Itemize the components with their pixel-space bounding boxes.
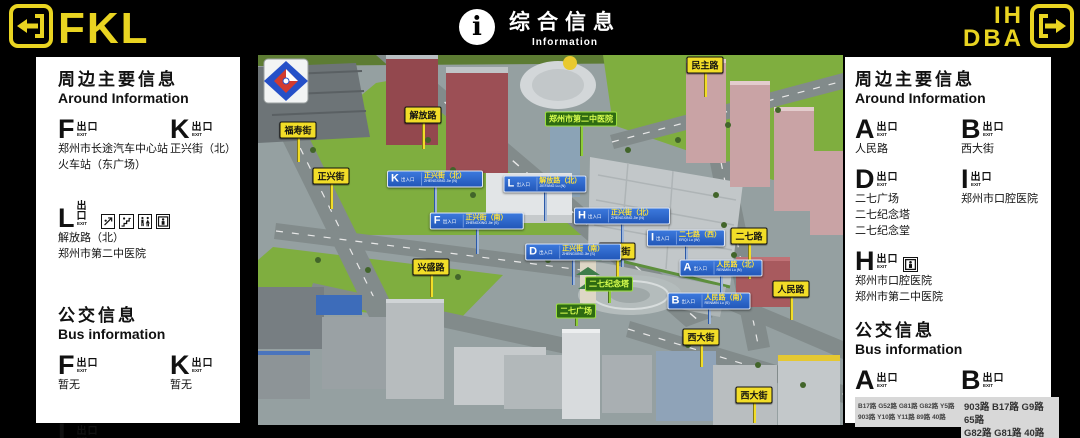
street-label: 二七路	[730, 228, 767, 245]
exit-word: 出口EXIT	[983, 123, 1005, 140]
escalator-icon	[101, 214, 115, 229]
exit-info-line: 火车站（东广场）	[58, 158, 170, 172]
exit-info-line: 暂无	[170, 378, 234, 392]
exit-marker-pole	[572, 259, 575, 285]
street-label: 兴盛路	[412, 259, 449, 276]
right-info-panel: 周边主要信息 Around Information A出口EXIT人民路B出口E…	[845, 57, 1051, 423]
exit-letter: A	[855, 369, 875, 391]
exit-info-line: 郑州市长途汽车中心站	[58, 142, 170, 156]
right-exit-letters: IH DBA	[963, 4, 1024, 50]
exit-entry-I: I出口EXIT郑州市口腔医院	[961, 168, 1045, 238]
around-entries-left: F出口EXIT郑州市长途汽车中心站火车站（东广场）K出口EXIT正兴街（北）L出…	[58, 118, 234, 261]
map-exit-marker-F: F出入口正兴街（南）ZHENGXING Jie (S)	[430, 213, 524, 230]
exit-info-line: 郑州市第二中医院	[855, 290, 961, 304]
exit-word: 出口EXIT	[877, 255, 899, 272]
exit-word: 出口EXIT	[877, 173, 899, 190]
exit-letter: L	[58, 422, 75, 438]
exit-info-line: 暂无	[58, 378, 170, 392]
exit-marker-pole	[434, 186, 437, 216]
exit-letter: I	[961, 168, 969, 190]
exit-entry-H: H出口EXIT郑州市口腔医院郑州市第二中医院	[855, 250, 961, 304]
street-label: 西大街	[682, 329, 719, 346]
info-icon: i	[459, 9, 495, 45]
street-label: 人民路	[772, 281, 809, 298]
exit-word: 出口EXIT	[77, 359, 99, 376]
label-pointer	[330, 182, 333, 209]
label-pointer	[297, 136, 300, 162]
street-label: 民主路	[686, 57, 723, 74]
bus-title-en: Bus information	[855, 341, 1045, 357]
exit-word: 出口EXIT	[877, 374, 899, 391]
around-title-en: Around Information	[855, 90, 1045, 106]
label-pointer	[704, 71, 707, 97]
left-exit-letters: FKL	[58, 5, 150, 53]
map-exit-marker-L: L出入口解放路（北）JIEFANG Lu (N)	[503, 176, 586, 193]
page-title: 综合信息	[509, 6, 621, 36]
street-label: 正兴街	[312, 168, 349, 185]
label-pointer	[430, 273, 433, 297]
street-label: 西大街	[735, 387, 772, 404]
exit-marker-pole	[476, 228, 479, 254]
map-exit-marker-A: A出入口人民路（北）RENMIN Lu (N)	[680, 260, 763, 277]
bus-title-en: Bus information	[58, 326, 234, 342]
exit-info-line: 解放路（北）	[58, 231, 170, 245]
map-exit-marker-K: K出入口正兴街（北）ZHENGXING Jie (N)	[387, 171, 483, 188]
exit-marker-pole	[544, 191, 547, 221]
elevator-icon	[156, 214, 170, 229]
exit-entry-B: B出口EXIT西大街	[961, 118, 1045, 156]
exit-entry-B: B出口EXIT903路 B17路 G9路 65路G82路 G81路 40路	[961, 369, 1072, 438]
exit-info-line: 郑州市口腔医院	[961, 192, 1045, 206]
bus-info-title-left: 公交信息 Bus information	[58, 301, 234, 342]
exit-letter: F	[58, 118, 75, 140]
label-pointer	[790, 295, 793, 320]
exit-entry-K: K出口EXIT暂无	[170, 354, 234, 392]
exit-info-line: 二七纪念塔	[855, 208, 961, 222]
exit-entry-D: D出口EXIT二七广场二七纪念塔二七纪念堂	[855, 168, 961, 238]
exit-info-line: 二七纪念堂	[855, 224, 961, 238]
page-title-en: Information	[509, 37, 621, 48]
exit-info-line: 郑州市口腔医院	[855, 274, 961, 288]
restroom-icon	[138, 214, 152, 229]
exit-entry-L: L出口EXIT暂无	[58, 422, 170, 438]
label-pointer	[422, 121, 425, 149]
exit-word: 出口EXIT	[192, 359, 214, 376]
bus-entries-left: F出口EXIT暂无K出口EXIT暂无L出口EXIT暂无	[58, 354, 234, 438]
label-pointer	[753, 401, 756, 423]
elevator-icon	[903, 257, 918, 272]
exit-word: 出口EXIT	[971, 173, 993, 190]
around-title-en: Around Information	[58, 90, 234, 106]
exit-letter: A	[855, 118, 875, 140]
exit-info-line: 二七广场	[855, 192, 961, 206]
exit-right-icon	[1029, 3, 1075, 54]
bus-route-box: B17路 G52路 G81路 G82路 Y5路903路 Y10路 Y11路 89…	[855, 397, 961, 427]
left-info-panel: 周边主要信息 Around Information F出口EXIT郑州市长途汽车…	[36, 57, 240, 423]
bus-title-zh: 公交信息	[58, 301, 234, 326]
header: FKL i 综合信息 Information IH DBA	[0, 0, 1080, 55]
exit-info-line: 正兴街（北）	[170, 142, 234, 156]
place-label: 郑州市第二中医院	[545, 112, 617, 127]
exit-word: 出口EXIT	[877, 123, 899, 140]
exit-letter: B	[961, 369, 981, 391]
exit-letter: K	[170, 354, 190, 376]
exit-entry-L: L出口EXIT解放路（北）郑州市第二中医院	[58, 202, 170, 261]
exit-letter: F	[58, 354, 75, 376]
exit-marker-pole	[708, 308, 711, 324]
place-label: 二七广场	[556, 304, 596, 319]
exit-word: 出口EXIT	[983, 374, 1005, 391]
map-exit-marker-D: D出入口正兴街（南）ZHENGXING Jie (S)	[525, 244, 621, 261]
around-title-zh: 周边主要信息	[58, 65, 234, 90]
label-pointer	[580, 124, 583, 156]
label-pointer	[700, 343, 703, 367]
bus-route-box: 903路 B17路 G9路 65路G82路 G81路 40路	[961, 397, 1059, 438]
exit-letter: B	[961, 118, 981, 140]
station-area-map: 福寿街解放路正兴街民主路二七路人民路兴盛路西大街西大街正兴街郑州市第二中医院二七…	[258, 55, 843, 425]
exit-word: 出口EXIT	[77, 427, 99, 438]
exit-entry-A: A出口EXITB17路 G52路 G81路 G82路 Y5路903路 Y10路 …	[855, 369, 961, 438]
exit-info-line: 郑州市第二中医院	[58, 247, 170, 261]
stairs-icon	[119, 214, 133, 229]
exit-word: 出口EXIT	[192, 123, 214, 140]
exit-entry-K: K出口EXIT正兴街（北）	[170, 118, 234, 172]
exit-entry-A: A出口EXIT人民路	[855, 118, 961, 156]
around-entries-right: A出口EXIT人民路B出口EXIT西大街D出口EXIT二七广场二七纪念塔二七纪念…	[855, 118, 1045, 304]
exit-word: 出口EXIT	[77, 123, 99, 140]
street-label: 解放路	[404, 107, 441, 124]
bus-title-zh: 公交信息	[855, 316, 1045, 341]
map-exit-marker-B: B出入口人民路（南）RENMIN Lu (S)	[668, 293, 751, 310]
around-info-title-left: 周边主要信息 Around Information	[58, 65, 234, 106]
exit-left-icon	[8, 3, 54, 54]
exit-letter: H	[855, 250, 875, 272]
exit-entry-F: F出口EXIT郑州市长途汽车中心站火车站（东广场）	[58, 118, 170, 172]
station-info-sign: FKL i 综合信息 Information IH DBA	[0, 0, 1080, 438]
exit-entry-F: F出口EXIT暂无	[58, 354, 170, 392]
map-exit-marker-H: H出入口正兴街（北）ZHENGXING Jie (N)	[574, 208, 670, 225]
place-label: 二七纪念塔	[585, 277, 633, 292]
street-label: 福寿街	[279, 122, 316, 139]
info-glyph: i	[472, 12, 482, 42]
around-title-zh: 周边主要信息	[855, 65, 1045, 90]
exit-info-line: 人民路	[855, 142, 961, 156]
exit-letter: L	[58, 207, 75, 229]
right-exit-letters-top: IH	[963, 4, 1024, 27]
map-exit-marker-I: I出入口二七路（西）ERQI Lu (W)	[647, 230, 725, 247]
bus-entries-right: A出口EXITB17路 G52路 G81路 G82路 Y5路903路 Y10路 …	[855, 369, 1045, 438]
exit-word: 出口EXIT	[77, 202, 98, 229]
bus-info-title-right: 公交信息 Bus information	[855, 316, 1045, 357]
exit-letter: K	[170, 118, 190, 140]
around-info-title-right: 周边主要信息 Around Information	[855, 65, 1045, 106]
exit-info-line: 西大街	[961, 142, 1045, 156]
exit-letter: D	[855, 168, 875, 190]
map-overlay: 福寿街解放路正兴街民主路二七路人民路兴盛路西大街西大街正兴街郑州市第二中医院二七…	[258, 55, 843, 425]
right-exit-letters-bottom: DBA	[963, 27, 1024, 50]
